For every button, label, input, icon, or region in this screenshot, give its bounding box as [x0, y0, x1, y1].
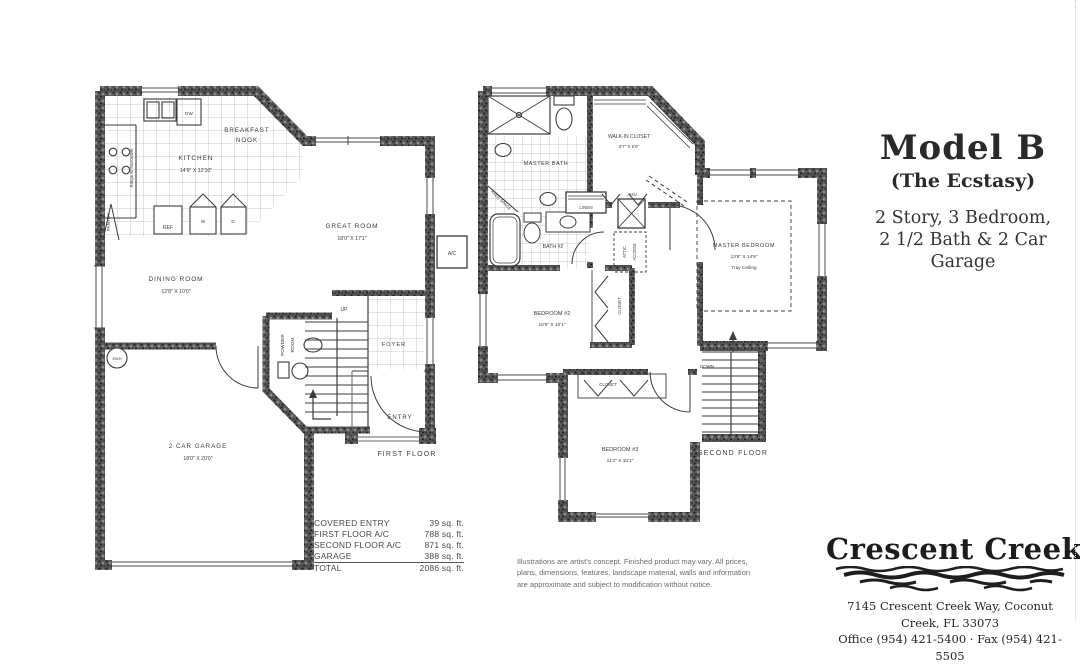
breakfast-nook-label-2: NOOK	[236, 137, 258, 144]
master-bedroom-dims: 13'6" X 14'6"	[730, 254, 757, 260]
kitchen-dims: 14'9" X 12'10"	[180, 168, 212, 174]
foyer-label: FOYER	[382, 342, 406, 348]
kitchen-label: KITCHEN	[178, 155, 213, 162]
table-row: GARAGE 388 sq. ft.	[314, 551, 464, 562]
second-floor-plan: KNEE SPACE MASTER BATH BATH #2 LINEN AHU…	[470, 78, 838, 540]
crescent-creek-logo-text: Crescent Creek	[826, 532, 1074, 566]
great-room-label: GREAT ROOM	[325, 223, 378, 230]
water-heater: EWH	[107, 348, 127, 368]
master-shower	[488, 96, 550, 134]
attic-label-1: ATTIC	[622, 246, 627, 258]
entry-label: ENTRY	[387, 415, 412, 421]
table-row: SECOND FLOOR A/C 871 sq. ft.	[314, 540, 464, 551]
great-room-dims: 18'0" X 17'1"	[337, 236, 366, 242]
pantry-label: PANTRY	[106, 213, 111, 231]
area-value: 39 sq. ft.	[429, 518, 464, 529]
ahu-label: AHU	[627, 192, 637, 197]
bedroom3-closet-label: CLOSET	[599, 382, 617, 387]
bedroom2-closet	[592, 270, 608, 342]
dining-room-dims: 12'8" X 10'0"	[161, 289, 190, 295]
dw-label: DW	[185, 111, 193, 116]
up-label: UP	[341, 307, 349, 313]
area-value: 871 sq. ft.	[424, 540, 464, 551]
first-floor-plan: DW Range w/ Microwave REF W D PANTRY UP …	[88, 78, 480, 583]
walk-in-closet-label: WALK-IN CLOSET	[608, 134, 650, 140]
area-value: 388 sq. ft.	[424, 551, 464, 562]
plan-description-line1: 2 Story, 3 Bedroom,	[845, 208, 1080, 230]
master-bedroom-label: MASTER BEDROOM	[713, 243, 775, 249]
master-bedroom-note: Tray Ceiling	[731, 265, 757, 271]
ewh-label: EWH	[112, 356, 121, 361]
table-row: FIRST FLOOR A/C 788 sq. ft.	[314, 529, 464, 540]
ref-label: REF	[163, 225, 173, 231]
linen-label: LINEN	[579, 205, 592, 210]
branding-block: Crescent Creek 7145 Crescent Creek Way, …	[826, 532, 1074, 665]
second-floor-caption: SECOND FLOOR	[698, 450, 768, 457]
first-floor-caption: FIRST FLOOR	[377, 451, 436, 458]
scan-artifact-line	[1075, 0, 1076, 620]
page-subtitle: (The Ecstasy)	[845, 170, 1080, 192]
area-label: GARAGE	[314, 551, 352, 562]
area-value: 2086 sq. ft.	[420, 563, 464, 574]
dining-room-label: DINING ROOM	[148, 276, 203, 283]
powder-label-2: ROOM	[290, 338, 296, 353]
brand-phone-line: Office (954) 421-5400 · Fax (954) 421-55…	[826, 631, 1074, 664]
table-row-total: TOTAL 2086 sq. ft.	[314, 562, 464, 574]
powder-label-1: POWDER	[280, 334, 286, 356]
ac-label: A/C	[448, 251, 457, 257]
area-value: 788 sq. ft.	[424, 529, 464, 540]
bedroom2-closet-label: CLOSET	[617, 297, 622, 315]
bath2-label: BATH #2	[543, 244, 564, 250]
plan-description-line2: 2 1/2 Bath & 2 Car Garage	[845, 230, 1080, 274]
bedroom3-label: BEDROOM #3	[602, 447, 639, 453]
area-label: SECOND FLOOR A/C	[314, 540, 401, 551]
linen-closet: LINEN	[566, 192, 606, 213]
washer-label: W	[201, 219, 206, 224]
disclaimer-text: Illustrations are artist's concept. Fini…	[517, 556, 751, 590]
ac-unit: A/C	[437, 236, 467, 268]
master-bath-label: MASTER BATH	[524, 161, 569, 167]
page-title: Model B	[845, 128, 1080, 168]
garage-dims: 18'0" X 20'0"	[183, 456, 212, 462]
water-reflection-graphic	[834, 566, 1066, 594]
garage-label: 2 CAR GARAGE	[169, 443, 227, 450]
brand-address-line: 7145 Crescent Creek Way, Coconut Creek, …	[826, 598, 1074, 631]
master-toilet	[554, 96, 574, 130]
bedroom2-dims: 10'6" X 10'1"	[538, 322, 565, 328]
range-note: Range w/ Microwave	[129, 148, 134, 188]
plan-description: 2 Story, 3 Bedroom, 2 1/2 Bath & 2 Car G…	[845, 208, 1080, 274]
area-label: TOTAL	[314, 563, 342, 574]
refrigerator: REF	[154, 206, 182, 234]
area-label: FIRST FLOOR A/C	[314, 529, 389, 540]
table-row: COVERED ENTRY 39 sq. ft.	[314, 518, 464, 529]
breakfast-nook-label-1: BREAKFAST	[224, 127, 269, 134]
bedroom2-label: BEDROOM #2	[534, 311, 571, 317]
walk-in-closet-dims: 8'7" X 5'0"	[619, 144, 639, 149]
area-table: COVERED ENTRY 39 sq. ft. FIRST FLOOR A/C…	[314, 518, 464, 573]
attic-label-2: ACCESS	[632, 243, 637, 260]
down-label: DOWN	[700, 364, 714, 369]
bedroom3-dims: 11'2" X 10'1"	[607, 458, 634, 464]
area-label: COVERED ENTRY	[314, 518, 390, 529]
entry-wall-stub-right	[419, 428, 436, 444]
plan-header: Model B (The Ecstasy) 2 Story, 3 Bedroom…	[845, 128, 1080, 274]
